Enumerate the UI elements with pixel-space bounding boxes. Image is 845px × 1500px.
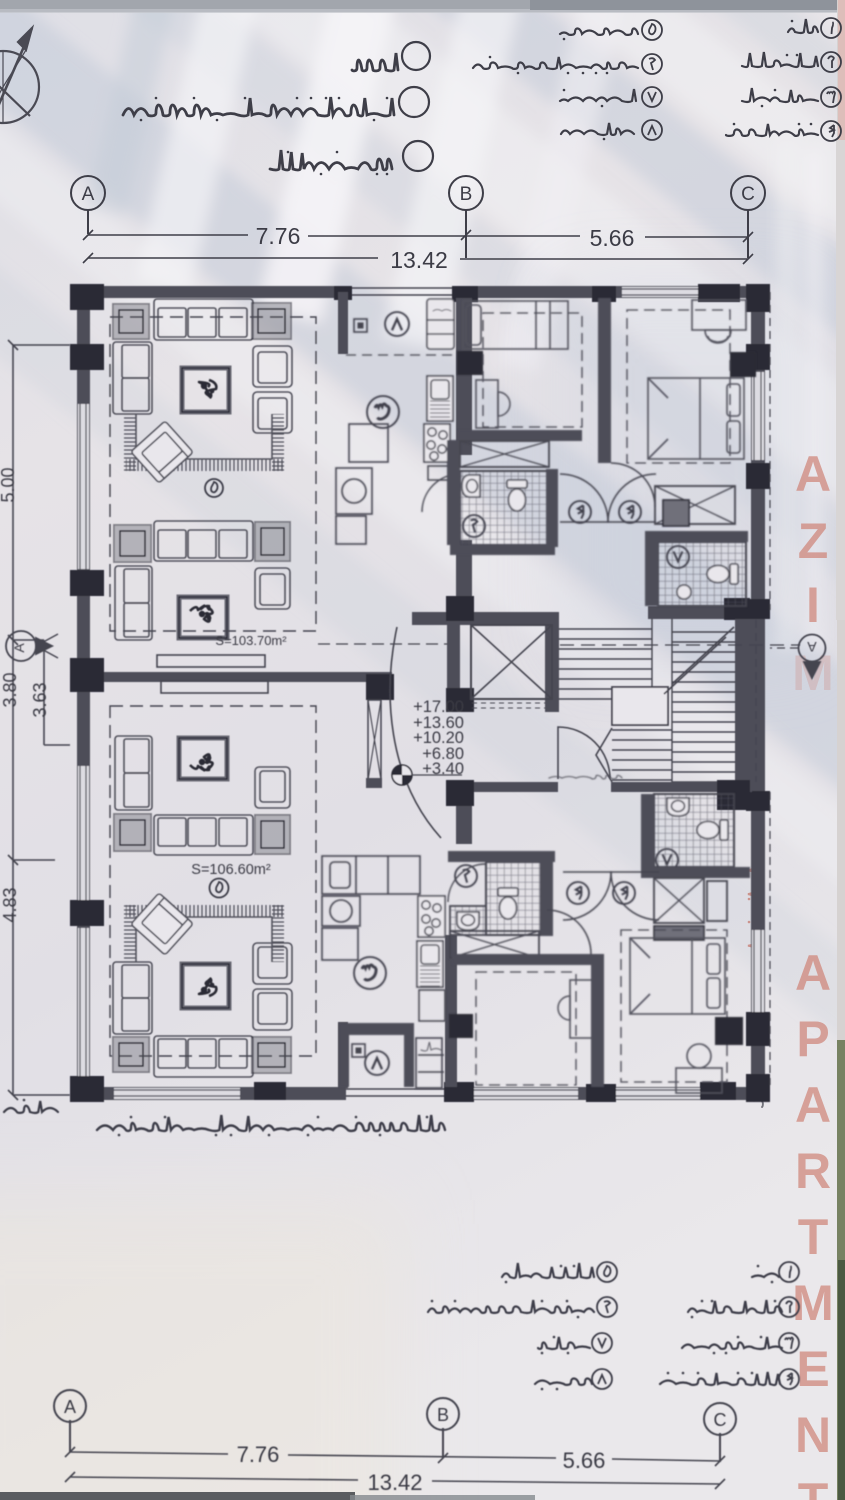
svg-text:4.83: 4.83: [0, 887, 20, 922]
svg-text:7.76: 7.76: [256, 223, 301, 249]
svg-text:Z: Z: [798, 513, 829, 569]
svg-text:C: C: [714, 1410, 727, 1430]
svg-text:A: A: [807, 639, 817, 655]
svg-text:5.66: 5.66: [590, 225, 635, 251]
svg-text:B: B: [460, 184, 473, 205]
svg-text:T: T: [798, 1209, 829, 1265]
svg-text:13.42: 13.42: [390, 247, 448, 273]
svg-text:S=103.70m²: S=103.70m²: [215, 633, 287, 648]
svg-text:I: I: [806, 577, 820, 633]
svg-text:R: R: [795, 1143, 831, 1199]
svg-text:C: C: [741, 184, 755, 205]
svg-text:3.63: 3.63: [30, 682, 50, 717]
svg-text:A: A: [795, 945, 831, 1001]
svg-text:A: A: [11, 643, 27, 653]
svg-text:S=106.60m²: S=106.60m²: [191, 862, 271, 878]
svg-text:13.42: 13.42: [367, 1470, 422, 1495]
svg-text:3.80: 3.80: [0, 672, 20, 707]
svg-text:E: E: [796, 1341, 829, 1397]
svg-text:7.76: 7.76: [237, 1442, 280, 1467]
svg-text:5.66: 5.66: [563, 1448, 606, 1473]
svg-text:5.00: 5.00: [0, 467, 18, 502]
svg-text:A: A: [64, 1397, 76, 1417]
svg-text:A: A: [795, 1077, 831, 1133]
svg-text:B: B: [437, 1405, 449, 1425]
svg-text:T: T: [798, 1473, 829, 1500]
svg-text:P: P: [796, 1011, 829, 1067]
svg-text:A: A: [795, 446, 831, 502]
svg-text:N: N: [795, 1407, 831, 1463]
svg-text:A: A: [82, 184, 95, 205]
